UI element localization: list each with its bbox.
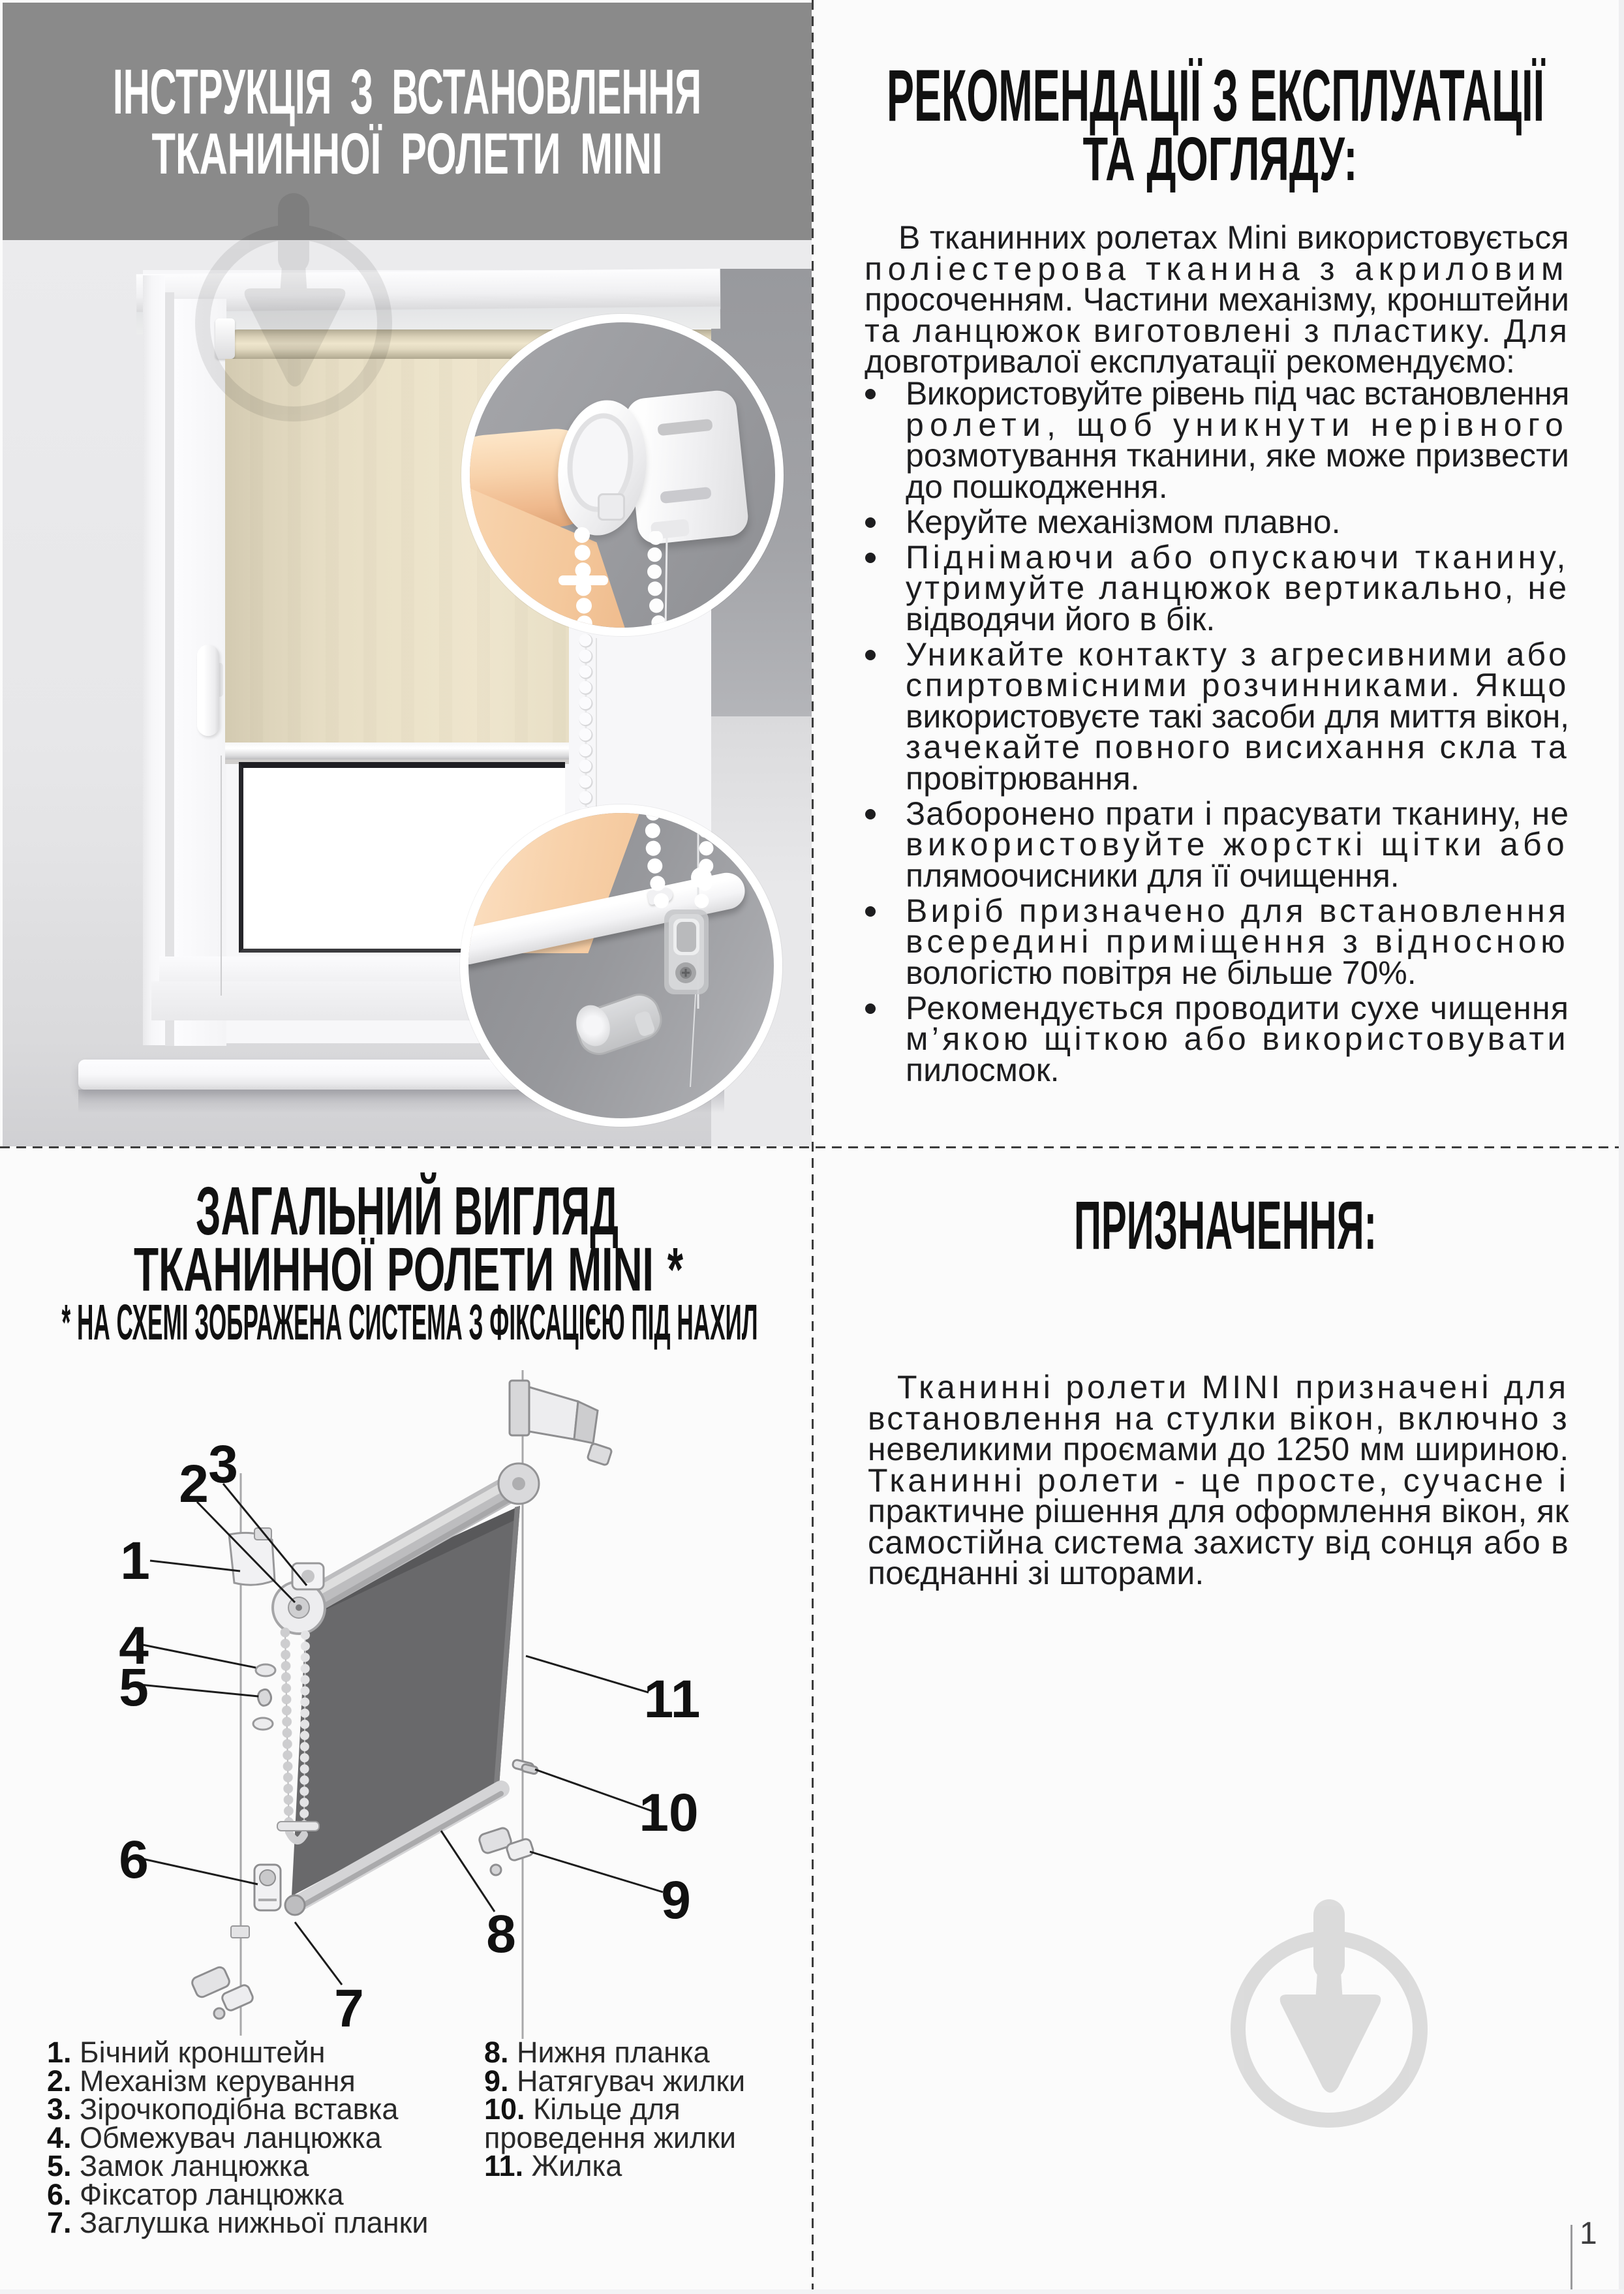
- svg-text:8: 8: [486, 1904, 516, 1964]
- svg-text:11: 11: [644, 1670, 701, 1729]
- svg-text:2: 2: [179, 1454, 209, 1514]
- svg-text:ПРИЗНАЧЕННЯ:: ПРИЗНАЧЕННЯ:: [1074, 1187, 1377, 1264]
- svg-text:1: 1: [120, 1531, 150, 1591]
- svg-text:10: 10: [639, 1783, 698, 1843]
- svg-text:ТА ДОГЛЯДУ:: ТА ДОГЛЯДУ:: [1083, 125, 1358, 194]
- svg-text:3: 3: [208, 1435, 238, 1494]
- svg-text:ІНСТРУКЦІЯ З ВСТАНОВЛЕННЯ: ІНСТРУКЦІЯ З ВСТАНОВЛЕННЯ: [113, 56, 701, 127]
- svg-text:6: 6: [119, 1830, 149, 1889]
- svg-text:5: 5: [119, 1658, 149, 1717]
- svg-text:* НА СХЕМІ ЗОБРАЖЕНА СИСТЕМА З: * НА СХЕМІ ЗОБРАЖЕНА СИСТЕМА З ФІКСАЦІЄЮ…: [62, 1294, 758, 1351]
- svg-text:7: 7: [334, 1979, 364, 2038]
- svg-text:9: 9: [661, 1871, 691, 1930]
